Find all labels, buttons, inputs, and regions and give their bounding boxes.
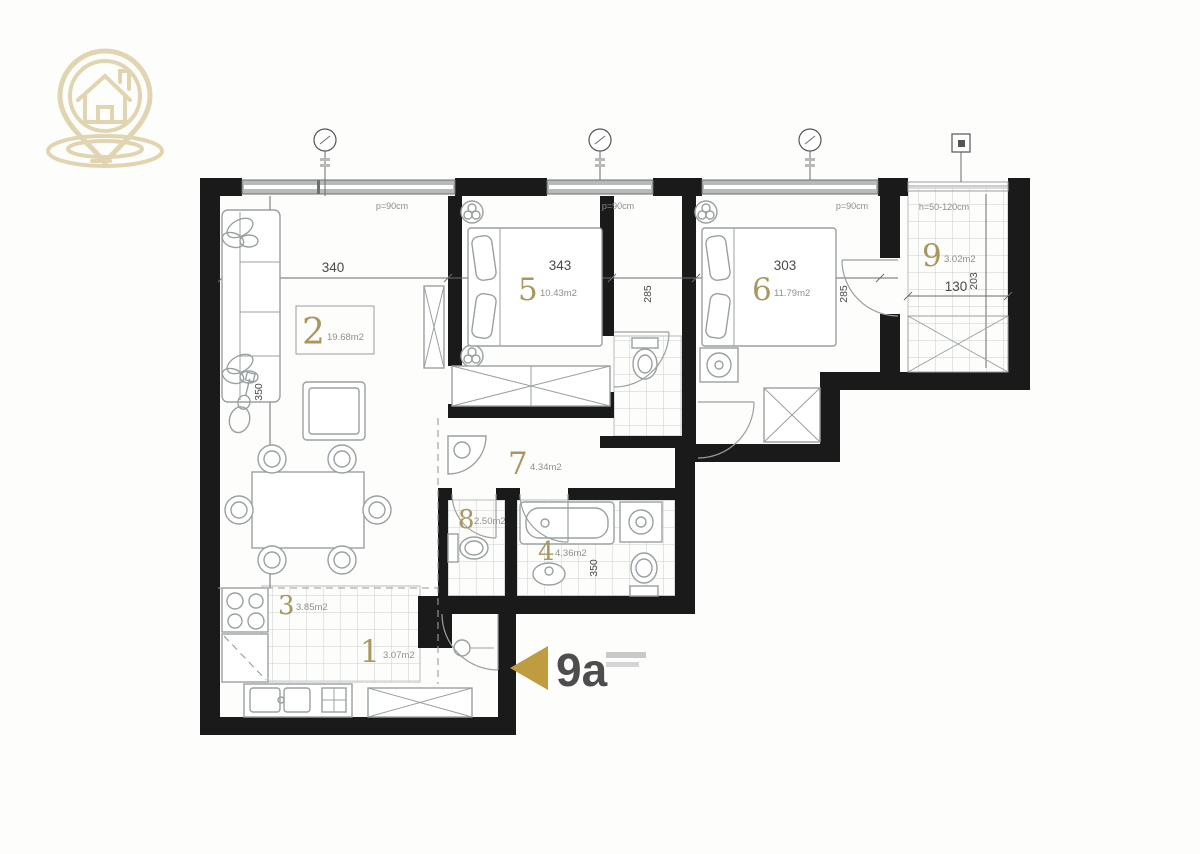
- room-1-number: 1: [360, 634, 380, 670]
- toilet: [631, 553, 657, 583]
- corner-sink: [448, 436, 486, 474]
- house-location-pin-icon: [48, 51, 162, 166]
- room-5-number: 5: [518, 272, 538, 308]
- dim-350a: 350: [253, 383, 265, 401]
- hall-closet: [368, 688, 472, 717]
- dim-203: 203: [968, 272, 980, 290]
- bedroom6-furniture: [695, 201, 836, 442]
- room-6-number: 6: [752, 272, 772, 308]
- unit-area-note: [606, 662, 639, 667]
- room-9-number: 9: [922, 238, 942, 274]
- room-3-area: 3.85m2: [296, 602, 328, 613]
- dim-343: 343: [549, 258, 572, 273]
- dim-303: 303: [774, 258, 797, 273]
- toilet-tank: [630, 586, 658, 596]
- parapet-note-1: p=90cm: [376, 201, 408, 211]
- dim-285a: 285: [642, 285, 654, 303]
- room-8-number: 8: [458, 505, 475, 535]
- room-7-number: 7: [508, 446, 528, 482]
- entrance-mark: 9a: [510, 644, 646, 696]
- room-8-area: 2.50m2: [474, 516, 506, 527]
- room-3-number: 3: [278, 591, 295, 621]
- floor-plan-canvas: 9a 1 3.07m2 2 19.68m2 3 3.85m2 4 4.36m2 …: [0, 0, 1200, 854]
- unit-label: 9a: [556, 644, 608, 696]
- door-arc: [842, 260, 898, 316]
- room-1-area: 3.07m2: [383, 650, 415, 661]
- dim-130: 130: [945, 279, 968, 294]
- room-4-number: 4: [538, 537, 555, 567]
- room-9-area: 3.02m2: [944, 254, 976, 265]
- toilet: [633, 349, 657, 379]
- dim-340: 340: [322, 260, 345, 275]
- room-6-area: 11.79m2: [774, 288, 810, 299]
- unit-area-note: [606, 652, 646, 658]
- floor-plan-page: 9a 1 3.07m2 2 19.68m2 3 3.85m2 4 4.36m2 …: [0, 0, 1200, 854]
- room-2-number: 2: [302, 312, 325, 353]
- parapet-note-3: p=90cm: [836, 201, 868, 211]
- dining-table: [252, 472, 364, 548]
- room-2-area: 19.68m2: [327, 332, 364, 343]
- toilet-tank: [632, 338, 658, 348]
- room-4-area: 4.36m2: [555, 548, 587, 559]
- dim-350b: 350: [588, 559, 600, 577]
- terrace-note: h=50-120cm: [919, 202, 969, 212]
- dim-285b: 285: [838, 285, 850, 303]
- toilet-tank: [448, 534, 458, 562]
- room-5-area: 10.43m2: [540, 288, 577, 299]
- parapet-note-2: p=90cm: [602, 201, 634, 211]
- coffee-table: [303, 382, 365, 440]
- room-7-area: 4.34m2: [530, 462, 562, 473]
- washing-machine: [620, 502, 662, 542]
